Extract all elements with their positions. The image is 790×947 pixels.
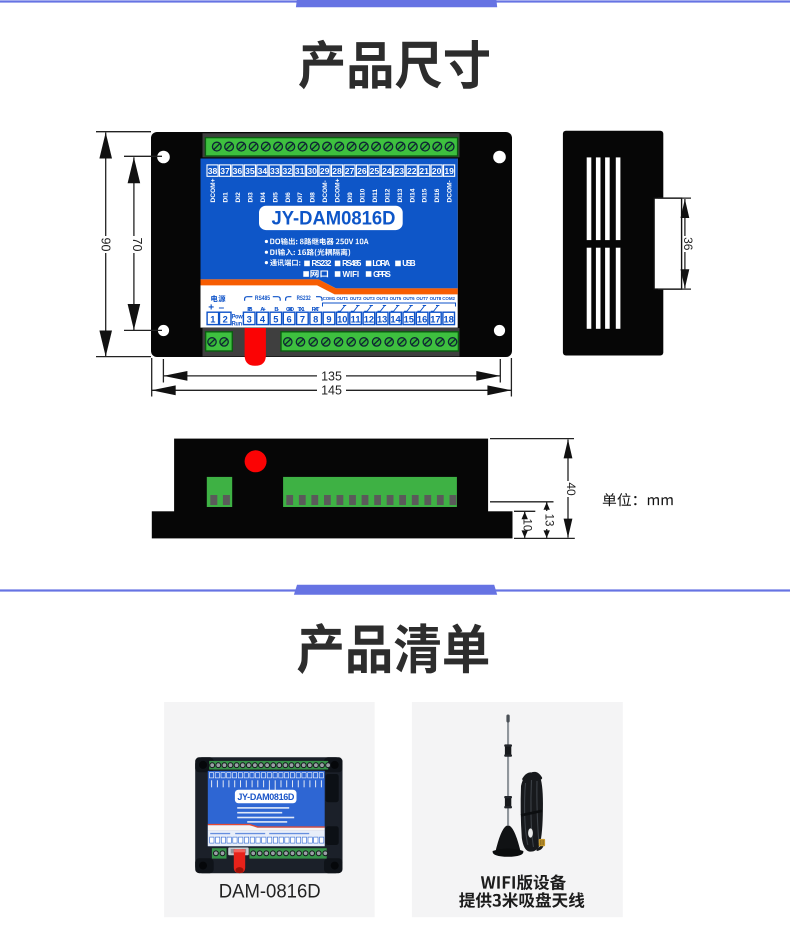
svg-text:70: 70 xyxy=(130,238,144,252)
svg-text:36: 36 xyxy=(681,237,695,251)
svg-text:38: 38 xyxy=(208,166,218,176)
svg-text:DCOM+: DCOM+ xyxy=(210,178,217,202)
svg-text:34: 34 xyxy=(258,166,268,176)
svg-text:20: 20 xyxy=(432,166,442,176)
svg-text:14: 14 xyxy=(390,314,401,324)
svg-text:3: 3 xyxy=(247,314,252,324)
svg-text:5: 5 xyxy=(273,314,278,324)
svg-text:LORA: LORA xyxy=(372,259,390,268)
svg-text:31: 31 xyxy=(295,166,305,176)
svg-text:19: 19 xyxy=(444,166,454,176)
svg-text:33: 33 xyxy=(270,166,280,176)
svg-text:DI2: DI2 xyxy=(235,192,242,203)
svg-text:30: 30 xyxy=(307,166,317,176)
svg-text:DI1: DI1 xyxy=(223,192,230,203)
svg-text:COM1: COM1 xyxy=(323,296,336,301)
svg-text:DCOM-: DCOM- xyxy=(322,180,329,202)
svg-text:DI8: DI8 xyxy=(310,192,317,203)
svg-text:DI4: DI4 xyxy=(260,192,267,203)
svg-text:2: 2 xyxy=(223,314,228,324)
svg-text:GPRS: GPRS xyxy=(373,270,391,279)
svg-text:90: 90 xyxy=(98,238,112,252)
svg-text:13: 13 xyxy=(377,314,387,324)
svg-text:DI11: DI11 xyxy=(372,189,379,203)
svg-text:25: 25 xyxy=(370,166,380,176)
svg-text:DI7: DI7 xyxy=(297,192,304,203)
svg-text:8: 8 xyxy=(313,314,318,324)
svg-text:OUT8: OUT8 xyxy=(430,296,442,301)
svg-text:DI10: DI10 xyxy=(359,188,366,202)
svg-text:DI6: DI6 xyxy=(285,192,292,203)
svg-text:RS485: RS485 xyxy=(342,259,362,268)
svg-text:DI9: DI9 xyxy=(347,192,354,203)
svg-text:35: 35 xyxy=(245,166,255,176)
svg-text:RS232: RS232 xyxy=(312,259,332,268)
svg-text:Run: Run xyxy=(232,320,243,327)
svg-text:4: 4 xyxy=(260,314,266,324)
svg-text:10: 10 xyxy=(521,519,533,532)
svg-text:17: 17 xyxy=(430,314,440,324)
svg-text:27: 27 xyxy=(345,166,355,176)
svg-text:37: 37 xyxy=(220,166,230,176)
svg-text:32: 32 xyxy=(282,166,292,176)
svg-text:18: 18 xyxy=(444,314,454,324)
svg-text:OUT6: OUT6 xyxy=(403,296,415,301)
svg-text:21: 21 xyxy=(419,166,429,176)
svg-text:12: 12 xyxy=(364,314,374,324)
svg-text:22: 22 xyxy=(407,166,417,176)
svg-text:7: 7 xyxy=(300,314,305,324)
svg-text:DI5: DI5 xyxy=(272,192,279,203)
svg-text:11: 11 xyxy=(351,314,361,324)
svg-text:DAM-0816D: DAM-0816D xyxy=(219,880,321,902)
svg-text:24: 24 xyxy=(382,166,392,176)
svg-text:40: 40 xyxy=(564,482,578,496)
svg-text:JY-DAM0816D: JY-DAM0816D xyxy=(237,792,295,802)
svg-text:13: 13 xyxy=(543,514,555,527)
svg-text:DI16: DI16 xyxy=(434,188,441,202)
svg-text:OUT4: OUT4 xyxy=(376,296,388,301)
svg-text:DCOM-: DCOM- xyxy=(447,180,454,202)
svg-text:23: 23 xyxy=(395,166,405,176)
svg-text:COM2: COM2 xyxy=(442,296,455,301)
svg-text:DI14: DI14 xyxy=(409,188,416,202)
svg-text:145: 145 xyxy=(321,384,342,398)
svg-text:DI15: DI15 xyxy=(422,188,429,202)
svg-text:OUT2: OUT2 xyxy=(350,296,362,301)
svg-text:16: 16 xyxy=(417,314,427,324)
svg-text:RS232: RS232 xyxy=(297,295,311,302)
svg-text:1: 1 xyxy=(210,314,215,324)
svg-text:OUT5: OUT5 xyxy=(390,296,402,301)
svg-text:DI13: DI13 xyxy=(397,188,404,202)
svg-text:USB: USB xyxy=(402,259,416,268)
svg-text:WIFI: WIFI xyxy=(343,270,360,279)
svg-text:10: 10 xyxy=(337,314,347,324)
svg-text:9: 9 xyxy=(326,314,331,324)
svg-text:DI12: DI12 xyxy=(384,188,391,202)
svg-text:JY-DAM0816D: JY-DAM0816D xyxy=(272,208,396,229)
svg-text:28: 28 xyxy=(332,166,342,176)
svg-text:15: 15 xyxy=(404,314,414,324)
svg-text:DI3: DI3 xyxy=(247,192,254,203)
svg-text:26: 26 xyxy=(357,166,367,176)
svg-text:OUT1: OUT1 xyxy=(336,296,348,301)
svg-text:29: 29 xyxy=(320,166,330,176)
svg-text:135: 135 xyxy=(321,369,342,383)
svg-text:RS485: RS485 xyxy=(255,295,270,302)
svg-text:6: 6 xyxy=(287,314,292,324)
svg-text:36: 36 xyxy=(233,166,243,176)
svg-text:OUT3: OUT3 xyxy=(363,296,375,301)
svg-text:OUT7: OUT7 xyxy=(416,296,428,301)
svg-text:DCOM+: DCOM+ xyxy=(335,178,342,202)
